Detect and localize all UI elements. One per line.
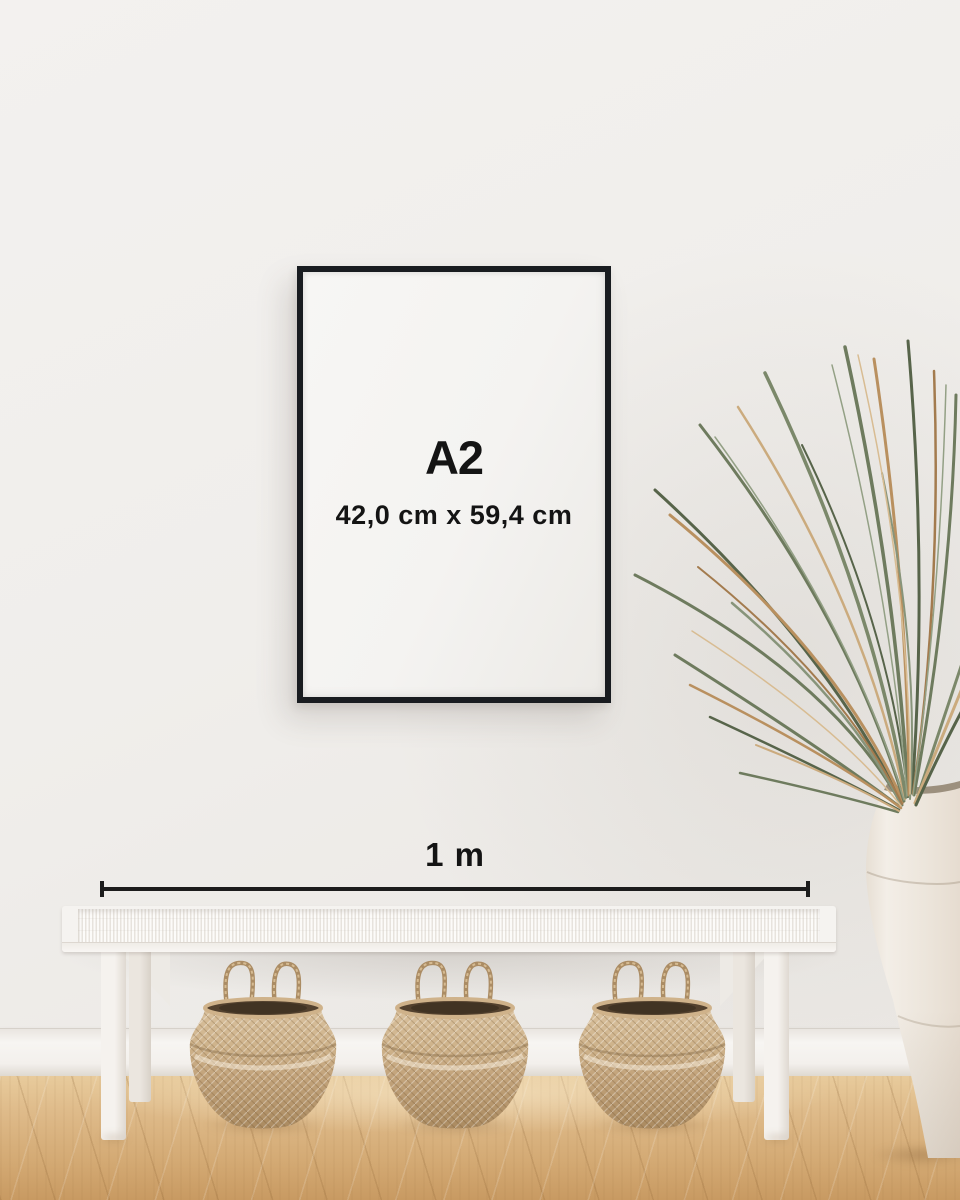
bench-leg-shadow [755, 1132, 799, 1144]
bench-front-rail [62, 942, 836, 952]
bench-leg-back-left [129, 948, 151, 1102]
room-scene: A2 42,0 cm x 59,4 cm 1 m [0, 0, 960, 1200]
bench-woven-top [78, 909, 820, 943]
basket-center [367, 960, 543, 1160]
bench-seat [62, 906, 836, 952]
bench-leg-front-right [764, 948, 789, 1140]
basket-left [175, 960, 351, 1160]
basket-right [564, 960, 740, 1160]
bench-leg-front-left [101, 948, 126, 1140]
bench-leg-shadow [92, 1132, 136, 1144]
